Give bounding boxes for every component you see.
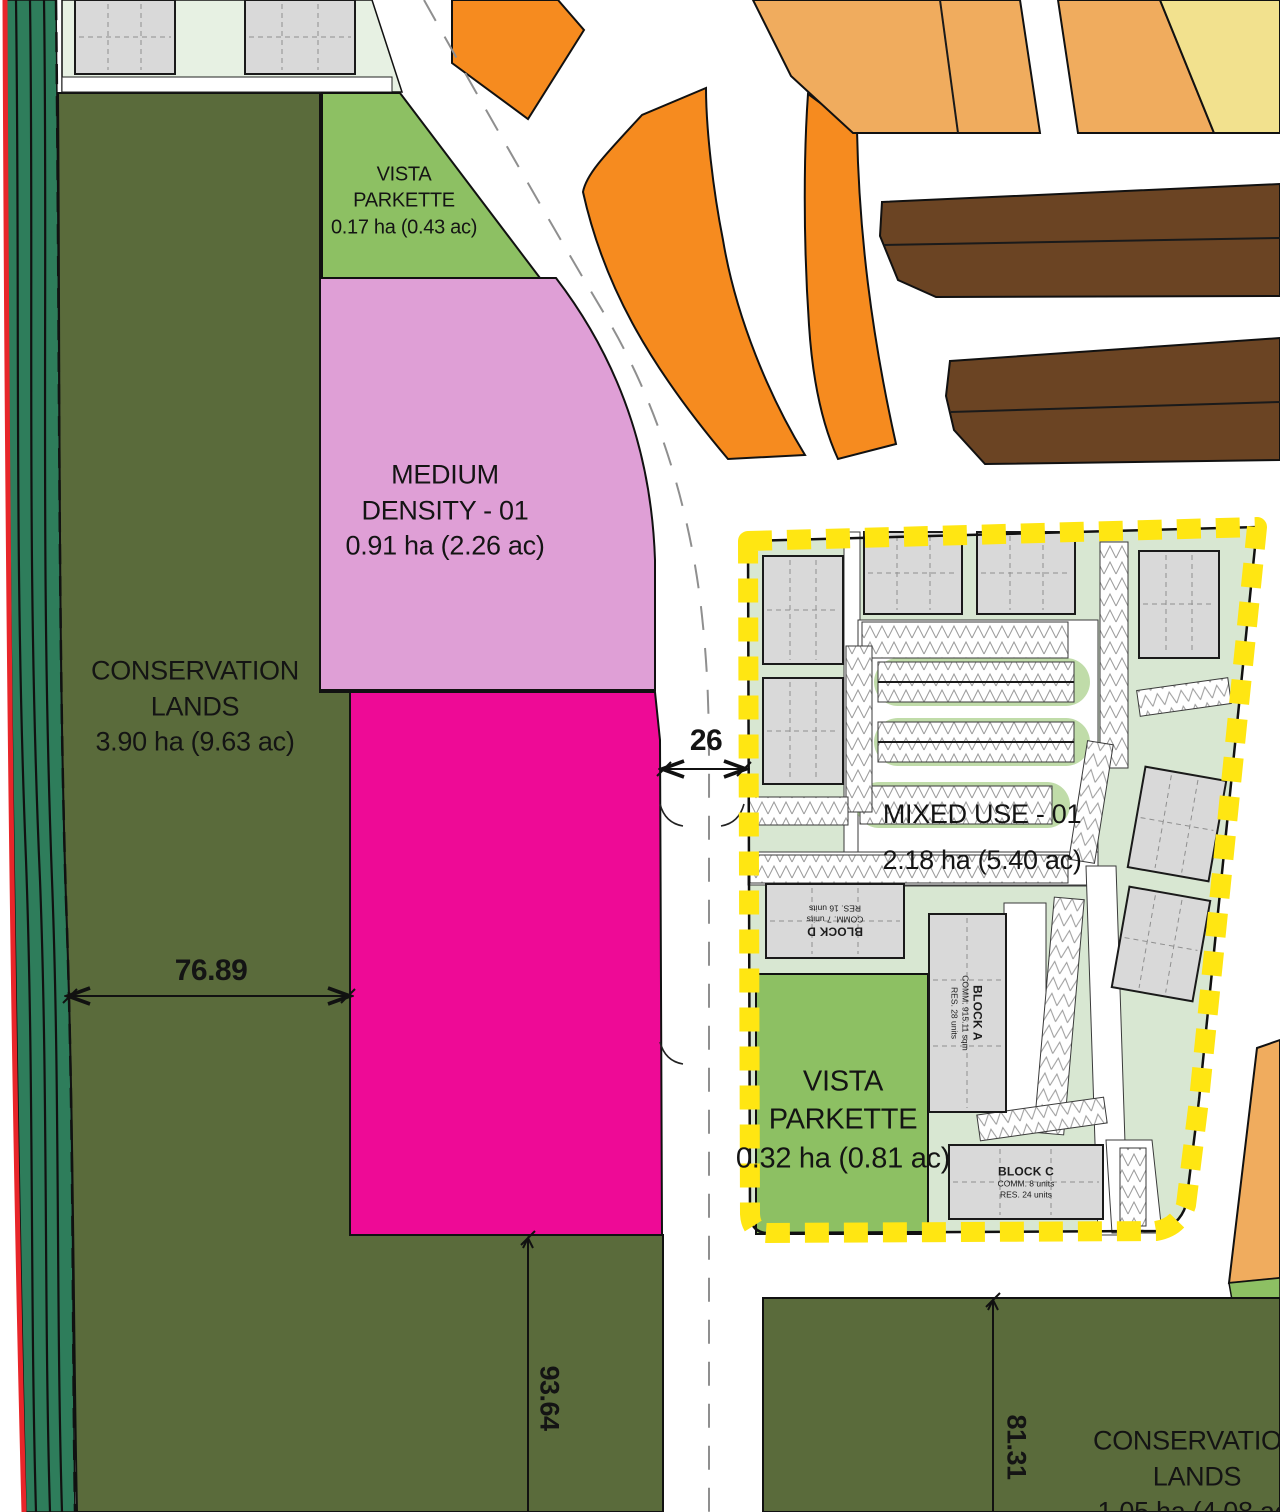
block-commercial: COMM. 8 units — [998, 1178, 1055, 1189]
label-mixed-use: MIXED USE - 01 2.18 ha (5.40 ac) — [882, 792, 1081, 884]
area-size: 1.05 ha (4.08 ac) — [1093, 1495, 1280, 1512]
label-block-d: BLOCK D COMM. 7 units RES. 16 units — [807, 903, 864, 938]
building-footprint — [1128, 767, 1226, 882]
dimension-west-width: 76.89 — [175, 954, 248, 988]
site-plan-canvas: CONSERVATION LANDS 3.90 ha (9.63 ac) VIS… — [0, 0, 1280, 1512]
area-name: MIXED USE - 01 — [882, 792, 1081, 838]
block-name: BLOCK A — [971, 975, 985, 1050]
block-name: BLOCK D — [807, 925, 864, 939]
area-name: PARKETTE — [736, 1101, 950, 1139]
block-residential: RES. 28 units — [949, 975, 960, 1050]
parking-stalls — [1100, 542, 1128, 768]
block-residential: RES. 16 units — [807, 903, 864, 914]
area-name: DENSITY - 01 — [345, 493, 544, 529]
building-footprint — [245, 0, 355, 74]
area-size: 0.91 ha (2.26 ac) — [345, 529, 544, 565]
area-name: LANDS — [91, 689, 299, 725]
block-name: BLOCK C — [998, 1164, 1055, 1178]
building-footprint — [763, 556, 843, 664]
building-footprint — [75, 0, 175, 74]
area-name: VISTA — [331, 161, 477, 187]
parking-stalls — [1120, 1148, 1146, 1226]
area-name: CONSERVATION — [1093, 1424, 1280, 1460]
area-name: CONSERVATION — [91, 654, 299, 690]
label-block-a: BLOCK A COMM. 915.11 sqm RES. 28 units — [949, 975, 984, 1050]
dimension-south-depth: 93.64 — [534, 1365, 565, 1430]
label-vista-parkette-north: VISTA PARKETTE 0.17 ha (0.43 ac) — [331, 161, 477, 240]
block-commercial: COMM. 915.11 sqm — [960, 975, 971, 1050]
townhouse-parcel-brown — [946, 338, 1280, 464]
area-name: MEDIUM — [345, 458, 544, 494]
townhouse-parcel-brown — [880, 184, 1280, 297]
building-footprint — [1112, 887, 1210, 1002]
parking-stalls — [862, 622, 1068, 658]
area-name: PARKETTE — [331, 188, 477, 214]
label-vista-parkette-south: VISTA PARKETTE 0.32 ha (0.81 ac) — [736, 1063, 950, 1178]
label-conservation-west: CONSERVATION LANDS 3.90 ha (9.63 ac) — [91, 654, 299, 761]
label-conservation-southeast: CONSERVATION LANDS 1.05 ha (4.08 ac) — [1093, 1424, 1280, 1512]
parking-stalls — [748, 797, 848, 825]
label-block-c: BLOCK C COMM. 8 units RES. 24 units — [998, 1164, 1055, 1199]
block-residential: RES. 24 units — [998, 1189, 1055, 1200]
sidewalk-strip — [62, 77, 392, 92]
area-size: 3.90 ha (9.63 ac) — [91, 725, 299, 761]
block-commercial: COMM. 7 units — [807, 914, 864, 925]
building-footprint — [763, 678, 843, 784]
dimension-road-width: 26 — [690, 724, 722, 758]
label-medium-density: MEDIUM DENSITY - 01 0.91 ha (2.26 ac) — [345, 458, 544, 565]
area-size: 0.32 ha (0.81 ac) — [736, 1139, 950, 1177]
area-name: VISTA — [736, 1063, 950, 1101]
parking-stalls — [846, 646, 872, 812]
dimension-southeast-depth: 81.31 — [1001, 1414, 1032, 1479]
area-size: 2.18 ha (5.40 ac) — [882, 838, 1081, 884]
area-name: LANDS — [1093, 1459, 1280, 1495]
high-density-parcel — [350, 692, 662, 1235]
building-footprint — [1139, 551, 1219, 658]
area-size: 0.17 ha (0.43 ac) — [331, 214, 477, 240]
